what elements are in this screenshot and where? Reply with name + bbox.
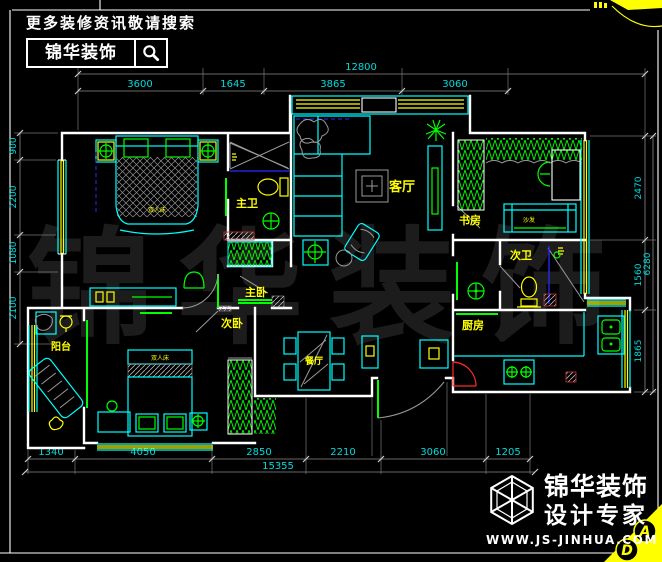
dim-right-seg: 1865 [634, 340, 644, 363]
dim-left-seg: 2200 [9, 185, 19, 208]
dim-bottom-seg: 2850 [246, 447, 271, 458]
bed-label: 双人床 [148, 206, 166, 214]
dimensions-bottom: 1340 4050 2850 2210 3060 1205 15355 [22, 394, 538, 475]
toilet-icon [258, 178, 288, 196]
dim-right-total: 6280 [643, 252, 653, 275]
header-tagline: 更多装修资讯敬请搜索 [26, 12, 196, 33]
room-label-master-bath: 主卫 [236, 196, 258, 210]
second-bed: 双人床 [128, 350, 192, 436]
nightstand-left [96, 140, 116, 162]
footer-brand: 锦华装饰 [544, 472, 648, 502]
nightstand-right [198, 140, 218, 162]
bedroom2-desk [98, 401, 130, 432]
room-label-kitchen: 厨房 [462, 318, 484, 332]
stove-icon [504, 360, 534, 384]
dim-top-total: 12800 [345, 62, 377, 73]
room-label-balcony: 阳台 [51, 340, 71, 353]
cube-logo-icon [486, 472, 538, 530]
dim-bottom-seg: 3060 [420, 447, 445, 458]
footer-subtitle: 设计专家 [544, 502, 648, 530]
cad-floorplan-sheet: 锦 华 装 饰 12800 3600 1645 3865 3060 1340 [0, 0, 662, 562]
dim-bottom-total: 15355 [262, 461, 294, 472]
dim-top-seg: 1645 [220, 79, 245, 90]
coffee-table [356, 170, 388, 202]
footer-branding: 锦华装饰 设计专家 WWW.JS-JINHUA.COM [486, 472, 658, 547]
north-corner-art [594, 0, 662, 27]
room-label-second-bath: 次卫 [510, 248, 532, 262]
dim-right-seg: 2470 [634, 176, 644, 199]
entry-door [378, 380, 444, 418]
header-branding: 更多装修资讯敬请搜索 锦华装饰 [26, 12, 196, 68]
bookshelf [458, 140, 484, 210]
dim-left-seg: 900 [9, 137, 19, 154]
dim-top-seg: 3600 [127, 79, 152, 90]
kitchen-door [453, 362, 476, 386]
dim-bottom-seg: 1205 [495, 447, 520, 458]
wardrobe [228, 360, 252, 434]
plant-row [486, 138, 582, 160]
balcony-plant-icon [49, 417, 63, 430]
room-label-master-bedroom: 主卧 [245, 285, 267, 299]
plant2-icon [254, 398, 276, 434]
bath-sink-icon [263, 213, 279, 229]
room-label-dining: 餐厅 [304, 355, 323, 367]
room-label-study: 书房 [459, 213, 481, 227]
sofa-label: 沙发 [523, 216, 535, 224]
bath2-sink-icon [468, 283, 484, 299]
dim-top-seg: 3060 [442, 79, 467, 90]
plant-icon [426, 120, 446, 141]
footer-website: WWW.JS-JINHUA.COM [486, 533, 658, 547]
ceiling-light-icon [303, 240, 328, 265]
lounge-chair [27, 356, 84, 419]
room-label-second-bedroom: 次卧 [221, 316, 243, 330]
dim-top-seg: 3865 [320, 79, 345, 90]
dim-bottom-seg: 2210 [330, 447, 355, 458]
search-box-graphic: 锦华装饰 [26, 38, 168, 68]
room-label-living: 客厅 [389, 179, 415, 195]
watermark-char: 饰 [481, 215, 607, 362]
dim-left-seg: 2100 [9, 296, 19, 319]
dim-bottom-seg: 4050 [130, 447, 155, 458]
floor-drain [566, 372, 576, 382]
dim-left-seg: 1080 [9, 241, 19, 264]
brand-name: 锦华装饰 [28, 40, 134, 66]
search-icon [136, 40, 166, 66]
bed2-label: 双人床 [151, 354, 169, 362]
